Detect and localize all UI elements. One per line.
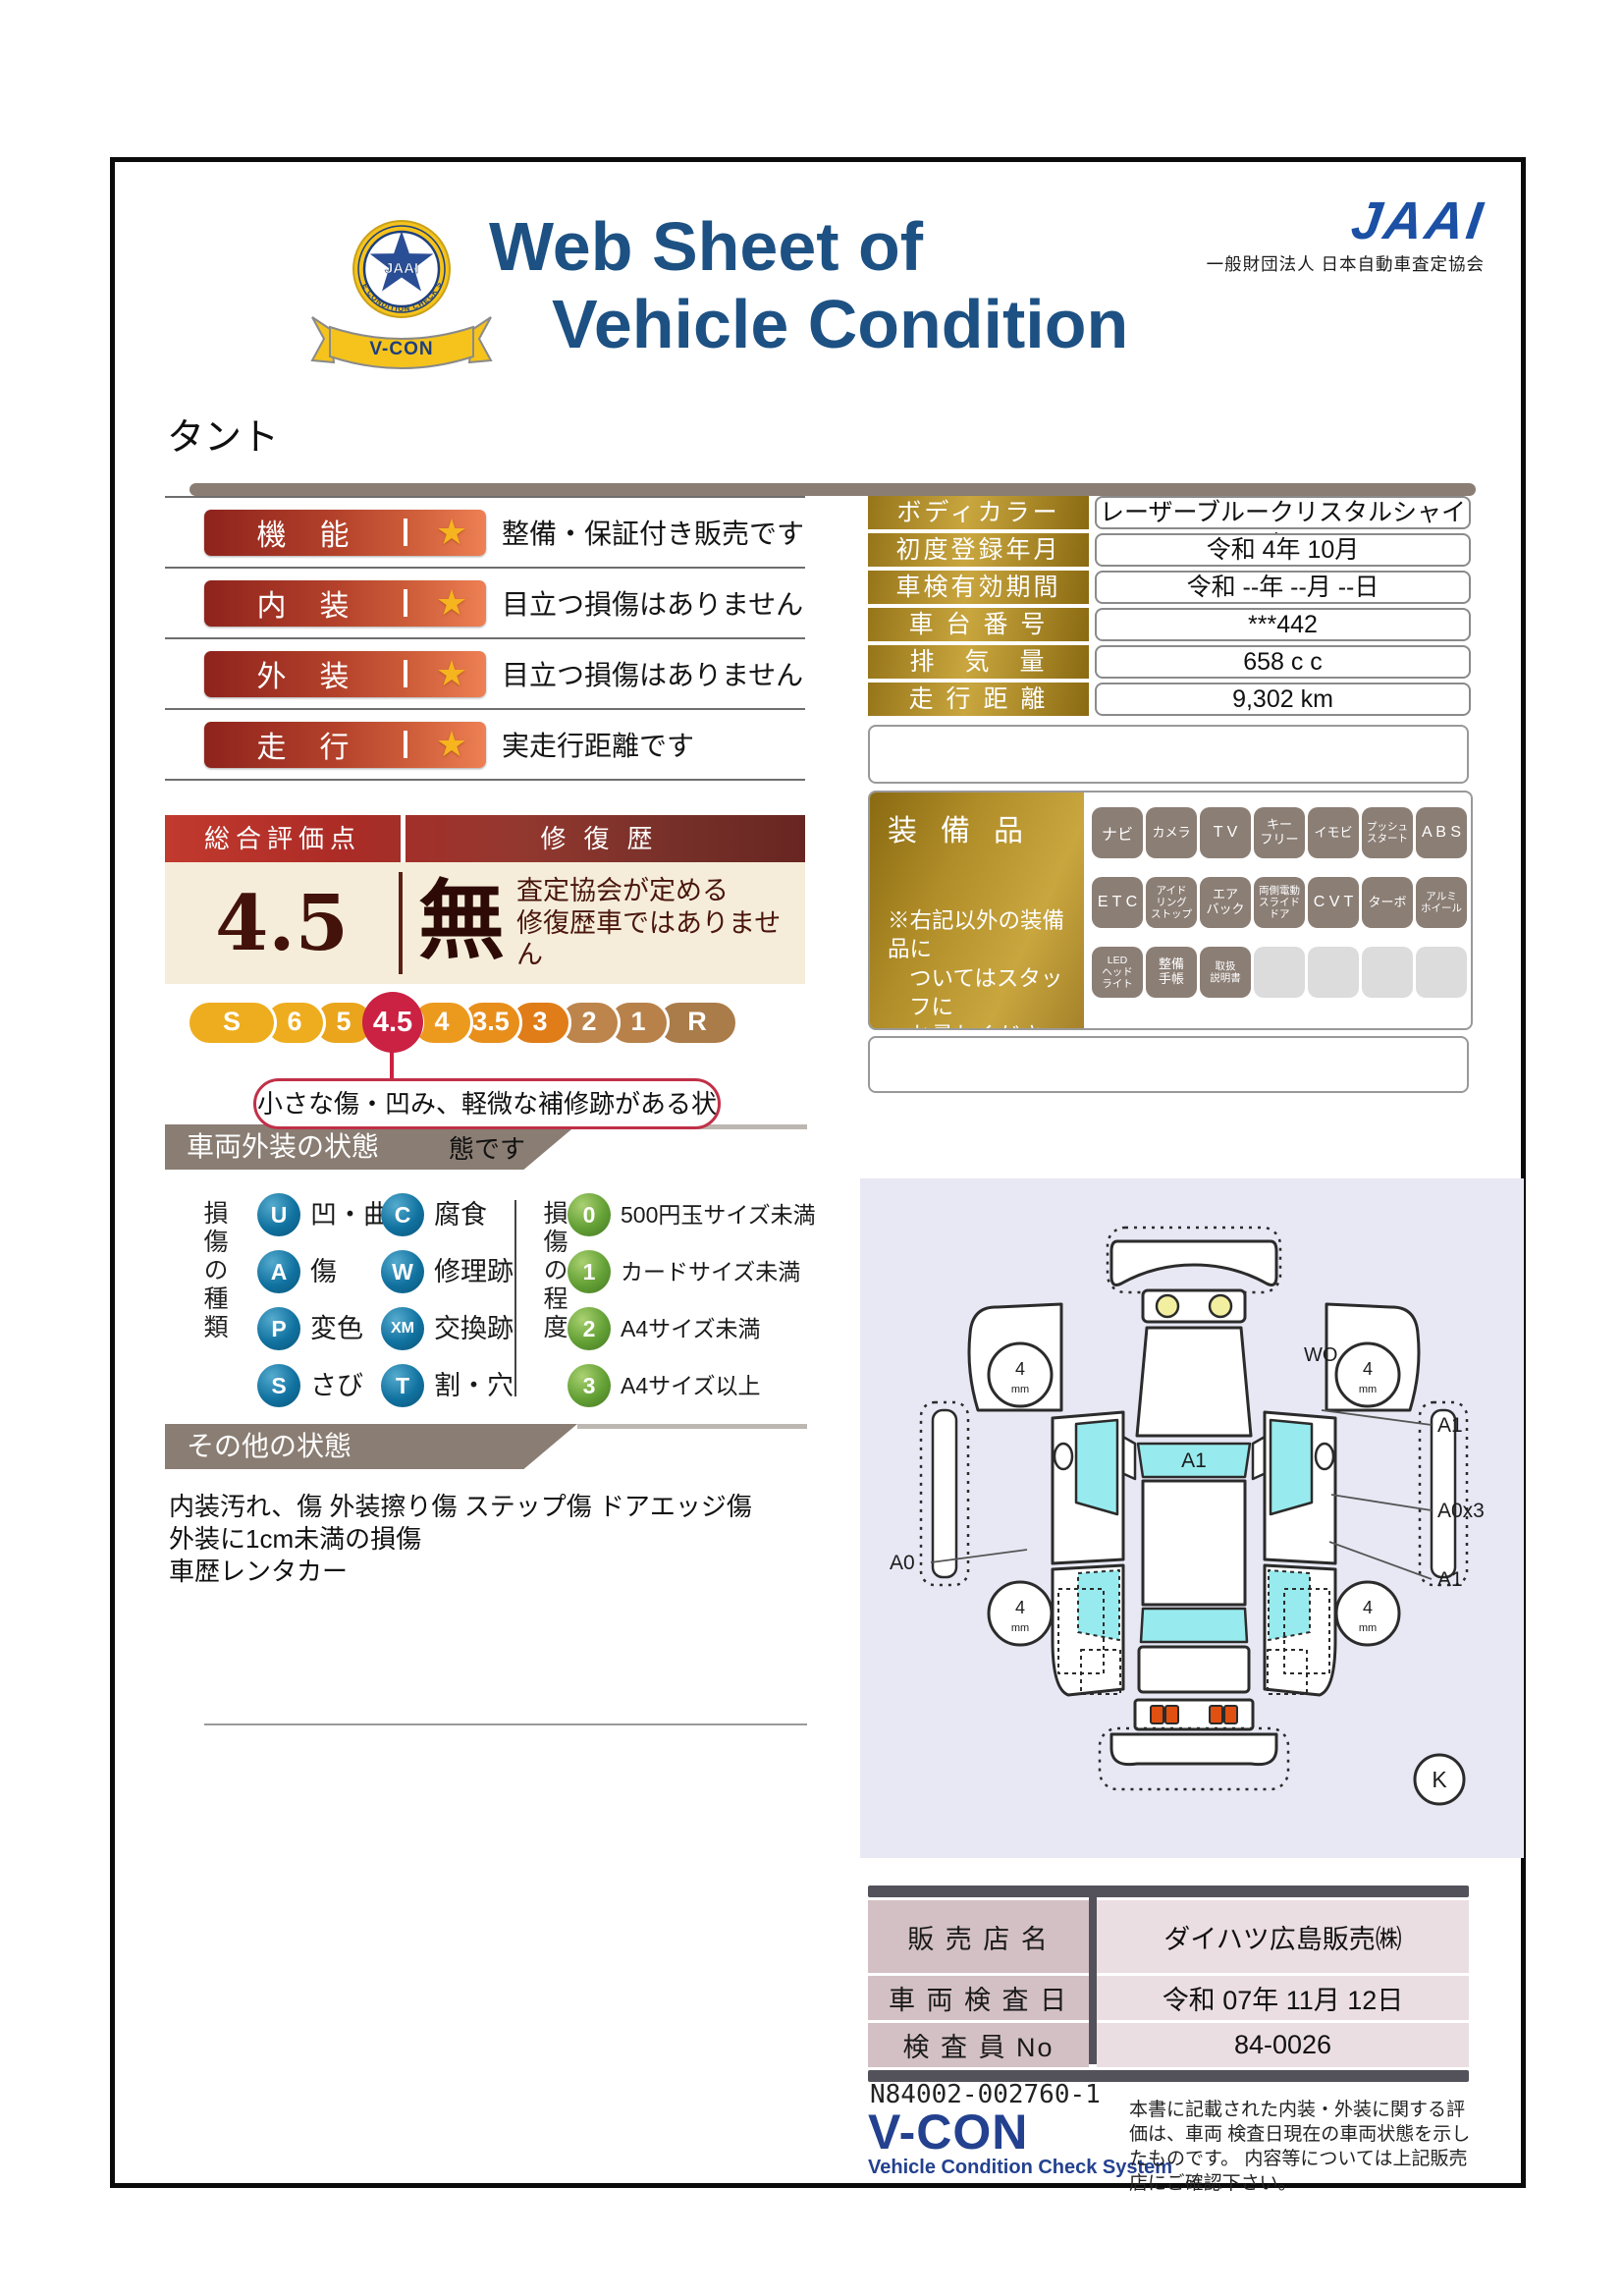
table-row: 排 気 量 658 c c [868,645,1471,679]
damage-type-label: 交換跡 [434,1307,514,1350]
taillight-icon [1224,1706,1237,1723]
key-label: K [1432,1767,1447,1792]
damage-degree-label: 500円玉サイズ未満 [621,1193,816,1236]
header-line [577,1424,807,1429]
damage-degree-label: A4サイズ以上 [621,1364,760,1407]
equipment-item: A B S [1416,807,1467,858]
taillight-icon [1210,1706,1222,1723]
inspection-date-value: 令和 07年 11月 12日 [1097,1976,1469,2020]
equipment-item: E T C [1092,877,1143,928]
top-divider-bar [189,483,1476,496]
empty-note-box [868,1036,1469,1093]
damage-type-label: 傷 [310,1250,337,1293]
damage-type-label: 修理跡 [434,1250,514,1293]
damage-callout-a1-bottom: A1 [1437,1568,1463,1591]
taillight-icon [1151,1706,1163,1723]
other-condition-text: 内装汚れ、傷 外装擦り傷 ステップ傷 ドアエッジ傷 外装に1cm未満の損傷 車歴… [169,1491,752,1588]
info-value: 658 c c [1095,645,1471,679]
tire-depth-unit: mm [1011,1622,1029,1634]
damage-callout-a0x3: A0x3 [1437,1500,1485,1522]
overall-body: 4.5 無 査定協会が定める 修復歴車ではありません [165,862,805,984]
page-border [110,157,1526,2188]
info-value: ***442 [1095,608,1471,641]
table-row: 車検有効期間 令和 --年 --月 --日 [868,571,1471,604]
table-row: 走 行 距 離 9,302 km [868,683,1471,716]
table-row: 車 両 検 査 日 令和 07年 11月 12日 [868,1976,1469,2020]
dealer-value: ダイハツ広島販売㈱ [1097,1900,1469,1973]
tire-depth-unit: mm [1359,1622,1377,1634]
note-line3: お尋ねください。 [888,1021,1084,1030]
empty-note-box [868,725,1469,784]
info-label: 走 行 距 離 [868,683,1089,716]
rating-badge: 走 行 ★ [204,722,486,768]
damage-type-code: C [381,1193,424,1236]
headlight-icon [1157,1295,1178,1317]
rating-rows: 機 能 ★ 整備・保証付き販売です 内 装 ★ 目立つ損傷はありません 外 装 … [165,496,805,781]
inspection-date-label: 車 両 検 査 日 [868,1976,1089,2020]
equipment-item: イモビ [1308,807,1359,858]
inspector-no-label: 検 査 員 No [868,2023,1089,2067]
repair-flag: 無 [418,880,505,966]
equipment-item: エア バック [1200,877,1251,928]
scale-bar: S 6 5 4 3.5 3 2 1 R [187,1000,738,1046]
other-section-header: その他の状態 [165,1424,577,1469]
rating-description: 整備・保証付き販売です [502,513,804,552]
damage-type-code: P [257,1307,300,1350]
table-row: 初度登録年月 令和 4年 10月 [868,533,1471,567]
equipment-item: 整備 手帳 [1146,947,1197,998]
dealer-label: 販 売 店 名 [868,1900,1089,1973]
damage-type-code: U [257,1193,300,1236]
tire-depth-value: 4 [1015,1598,1025,1617]
equipment-empty-slot [1362,947,1413,998]
equipment-item: C V T [1308,877,1359,928]
vcon-subtitle: Vehicle Condition Check System [868,2157,1172,2179]
repair-line2: 修復歴車ではありません [516,908,781,969]
other-line1: 内装汚れ、傷 外装擦り傷 ステップ傷 ドアエッジ傷 [169,1491,752,1523]
rating-label: 内 装 [204,581,404,625]
rating-row-interior: 内 装 ★ 目立つ損傷はありません [165,567,805,637]
other-line3: 車歴レンタカー [169,1556,752,1588]
damage-degree-code: 1 [568,1250,611,1293]
tire-depth-value: 4 [1363,1598,1373,1617]
selected-score-marker: 4.5 [362,992,423,1053]
info-value: レーザーブルークリスタルシャイン [1095,496,1471,529]
damage-degree-label: A4サイズ未満 [621,1307,760,1350]
tire-depth-value: 4 [1015,1359,1025,1379]
equipment-empty-slot [1254,947,1305,998]
table-row: 車 台 番 号 ***442 [868,608,1471,641]
car-diagram-svg: A1 WO A1 A0x3 A1 A0 K 4 mm 4 mm 4 mm 4 m… [860,1178,1524,1858]
damage-callout-a1-top: A1 [1437,1414,1463,1437]
title-line1: Web Sheet of [489,208,923,285]
equipment-item: 取扱 説明書 [1200,947,1251,998]
damage-type-label: さび [310,1364,363,1407]
overall-header: 総合評価点 修復歴 [165,815,805,862]
car-damage-diagram: A1 WO A1 A0x3 A1 A0 K 4 mm 4 mm 4 mm 4 m… [860,1178,1524,1858]
dealer-table: 販 売 店 名 ダイハツ広島販売㈱ 車 両 検 査 日 令和 07年 11月 1… [868,1886,1469,2082]
overall-score-title: 総合評価点 [165,815,401,862]
divider-line [204,1723,807,1725]
table-top-bar [868,1886,1469,1897]
damage-type-code: S [257,1364,300,1407]
equipment-item: キー フリー [1254,807,1305,858]
headlight-icon [1210,1295,1231,1317]
jaai-logo-block: JAAI 一般財団法人 日本自動車査定協会 [1119,194,1485,276]
info-label: 車検有効期間 [868,571,1089,604]
equipment-item: LED ヘッド ライト [1092,947,1143,998]
table-row: 検 査 員 No 84-0026 [868,2023,1469,2067]
jaai-organization: 一般財団法人 日本自動車査定協会 [1119,251,1485,276]
equipment-box: 装備品 ※右記以外の装備品に ついてはスタッフに お尋ねください。 ナビ カメラ… [868,791,1473,1030]
tire-depth-value: 4 [1363,1359,1373,1379]
badge-separator [404,660,407,687]
damage-type-label: 凹・曲 [310,1193,390,1236]
damage-degree-code: 2 [568,1307,611,1350]
note-line2: ついてはスタッフに [888,964,1084,1022]
rating-description: 目立つ損傷はありません [502,583,803,623]
info-value: 9,302 km [1095,683,1471,716]
rating-label: 走 行 [204,723,404,766]
damage-degree-label: カードサイズ未満 [621,1250,800,1293]
equipment-empty-slot [1308,947,1359,998]
equipment-item: アイド リング ストップ [1146,877,1197,928]
damage-type-code: A [257,1250,300,1293]
equipment-item: ターボ [1362,877,1413,928]
table-row: ボディカラー レーザーブルークリスタルシャイン [868,496,1471,529]
damage-degrees-title: 損傷の程度 [536,1200,571,1342]
other-line2: 外装に1cm未満の損傷 [169,1523,752,1556]
title-line2: Vehicle Condition [489,286,1128,363]
star-icon: ★ [417,653,486,694]
overall-score-value: 4.5 [165,879,399,968]
equipment-item: カメラ [1146,807,1197,858]
star-icon: ★ [417,724,486,765]
inspector-no-value: 84-0026 [1097,2023,1469,2067]
repair-history-block: 無 査定協会が定める 修復歴車ではありません [403,875,805,970]
info-label: 排 気 量 [868,645,1089,679]
star-icon: ★ [417,582,486,624]
equipment-item: ナビ [1092,807,1143,858]
other-section-title: その他の状態 [187,1431,352,1461]
damage-degree-code: 0 [568,1193,611,1236]
damage-degree-code: 3 [568,1364,611,1407]
damage-type-code: T [381,1364,424,1407]
damage-type-label: 腐食 [434,1193,487,1236]
emblem-ribbon-text: V-CON [369,339,433,359]
rating-description: 目立つ損傷はありません [502,654,803,693]
repair-line1: 査定協会が定める [516,876,729,905]
info-label: 初度登録年月 [868,533,1089,567]
equipment-empty-slot [1416,947,1467,998]
tire-depth-unit: mm [1011,1384,1029,1395]
scale-segment-s: S [187,1000,277,1046]
rating-row-exterior: 外 装 ★ 目立つ損傷はありません [165,637,805,708]
damage-type-code: W [381,1250,424,1293]
rating-badge: 機 能 ★ [204,510,486,556]
info-value: 令和 --年 --月 --日 [1095,571,1471,604]
equipment-label-panel: 装備品 ※右記以外の装備品に ついてはスタッフに お尋ねください。 [870,793,1084,1028]
repair-history-title: 修復歴 [406,815,805,862]
equipment-title: 装備品 [888,806,1084,849]
emblem-jaai-text: JAAI [385,260,418,277]
callout-stem [390,1049,394,1082]
info-label: ボディカラー [868,496,1089,529]
note-line1: ※右記以外の装備品に [888,906,1084,964]
tire-depth-unit: mm [1359,1384,1377,1395]
rating-badge: 外 装 ★ [204,651,486,697]
damage-type-code: XM [381,1307,424,1350]
badge-separator [404,519,407,546]
damage-type-label: 変色 [310,1307,363,1350]
score-callout: 小さな傷・凹み、軽微な補修跡がある状態です [253,1078,721,1129]
score-scale: S 6 5 4 3.5 3 2 1 R 4.5 小さな傷・凹み、軽微な補修跡があ… [165,994,805,1131]
repair-description: 査定協会が定める 修復歴車ではありません [516,875,805,970]
rating-label: 機 能 [204,511,404,554]
damage-types-title: 損傷の種類 [196,1200,232,1342]
page-title: Web Sheet of Vehicle Condition [489,208,1128,363]
badge-separator [404,731,407,758]
info-value: 令和 4年 10月 [1095,533,1471,567]
taillight-icon [1165,1706,1178,1723]
jaai-logo: JAAI [1348,194,1488,247]
equipment-item: プッシュ スタート [1362,807,1413,858]
damage-type-label: 割・穴 [434,1364,514,1407]
disclaimer-text: 本書に記載された内装・外装に関する評価は、車両 検査日現在の車両状態を示したもの… [1129,2098,1483,2196]
rating-row-mileage: 走 行 ★ 実走行距離です [165,708,805,781]
equipment-note: ※右記以外の装備品に ついてはスタッフに お尋ねください。 [888,906,1084,1030]
info-label: 車 台 番 号 [868,608,1089,641]
damage-callout-a0: A0 [890,1552,915,1574]
equipment-grid: ナビ カメラ T V キー フリー イモビ プッシュ スタート A B S E … [1084,793,1471,1028]
table-vertical-divider [1089,1897,1097,2064]
overall-score-box: 総合評価点 修復歴 4.5 無 査定協会が定める 修復歴車ではありません [165,815,805,984]
equipment-item: T V [1200,807,1251,858]
legend-divider [514,1200,516,1396]
table-row: 販 売 店 名 ダイハツ広島販売㈱ [868,1900,1469,1973]
rating-label: 外 装 [204,652,404,695]
vehicle-condition-sheet: VEHICLE CONDITION CHECK SYSTEM JAAI V-CO… [0,0,1623,2296]
rating-badge: 内 装 ★ [204,580,486,627]
vcon-logo: V-CON [868,2107,1028,2157]
equipment-item: 両側電動 スライド ドア [1254,877,1305,928]
wo-label: WO [1304,1344,1337,1366]
equipment-item: アルミ ホイール [1416,877,1467,928]
vcon-emblem-icon: VEHICLE CONDITION CHECK SYSTEM JAAI V-CO… [310,211,493,380]
badge-separator [404,589,407,617]
star-icon: ★ [417,512,486,553]
windshield-damage-label: A1 [1181,1449,1207,1472]
exterior-section-title: 車両外装の状態 [187,1131,379,1162]
rating-description: 実走行距離です [502,725,694,764]
model-name: タント [167,407,279,461]
rating-row-function: 機 能 ★ 整備・保証付き販売です [165,496,805,567]
vehicle-info-table: ボディカラー レーザーブルークリスタルシャイン 初度登録年月 令和 4年 10月… [868,496,1471,720]
